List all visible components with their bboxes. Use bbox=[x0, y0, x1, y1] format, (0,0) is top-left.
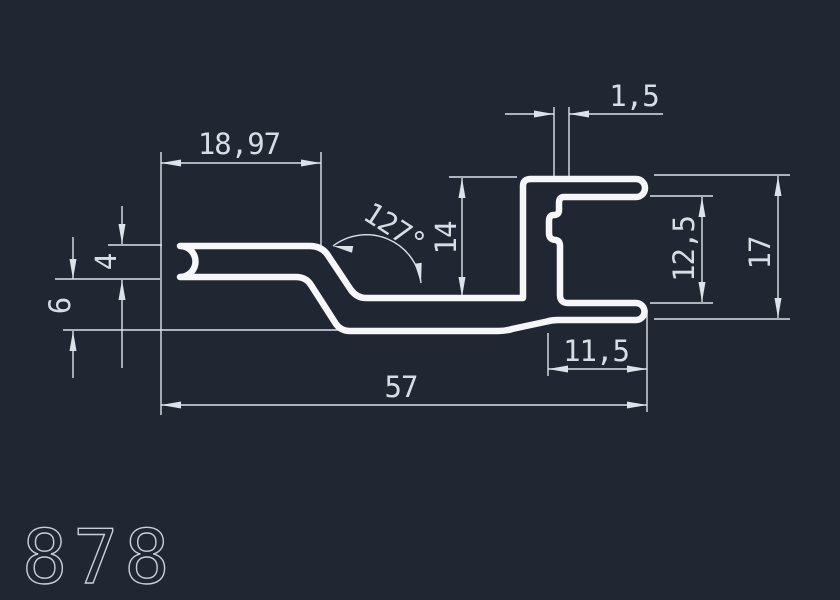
dim-label-wall-thickness: 1,5 bbox=[609, 79, 658, 113]
drawing-canvas: 18,97 1,5 127° 14 4 6 12,5 17 11,5 57 87… bbox=[0, 0, 840, 600]
part-number: 878 bbox=[22, 513, 175, 600]
cad-drawing: 18,97 1,5 127° 14 4 6 12,5 17 11,5 57 87… bbox=[0, 0, 840, 600]
dim-label-tail-length: 11,5 bbox=[563, 334, 629, 368]
dim-label-arm-thickness: 4 bbox=[89, 253, 123, 270]
dim-label-left-drop-height: 6 bbox=[43, 298, 77, 314]
dim-label-top-arm-length: 18,97 bbox=[198, 127, 280, 161]
dim-label-channel-opening-height: 12,5 bbox=[667, 216, 701, 282]
dim-label-overall-height: 17 bbox=[743, 237, 777, 270]
dim-label-channel-inner-height: 14 bbox=[429, 221, 463, 254]
dim-label-overall-width: 57 bbox=[385, 370, 418, 404]
